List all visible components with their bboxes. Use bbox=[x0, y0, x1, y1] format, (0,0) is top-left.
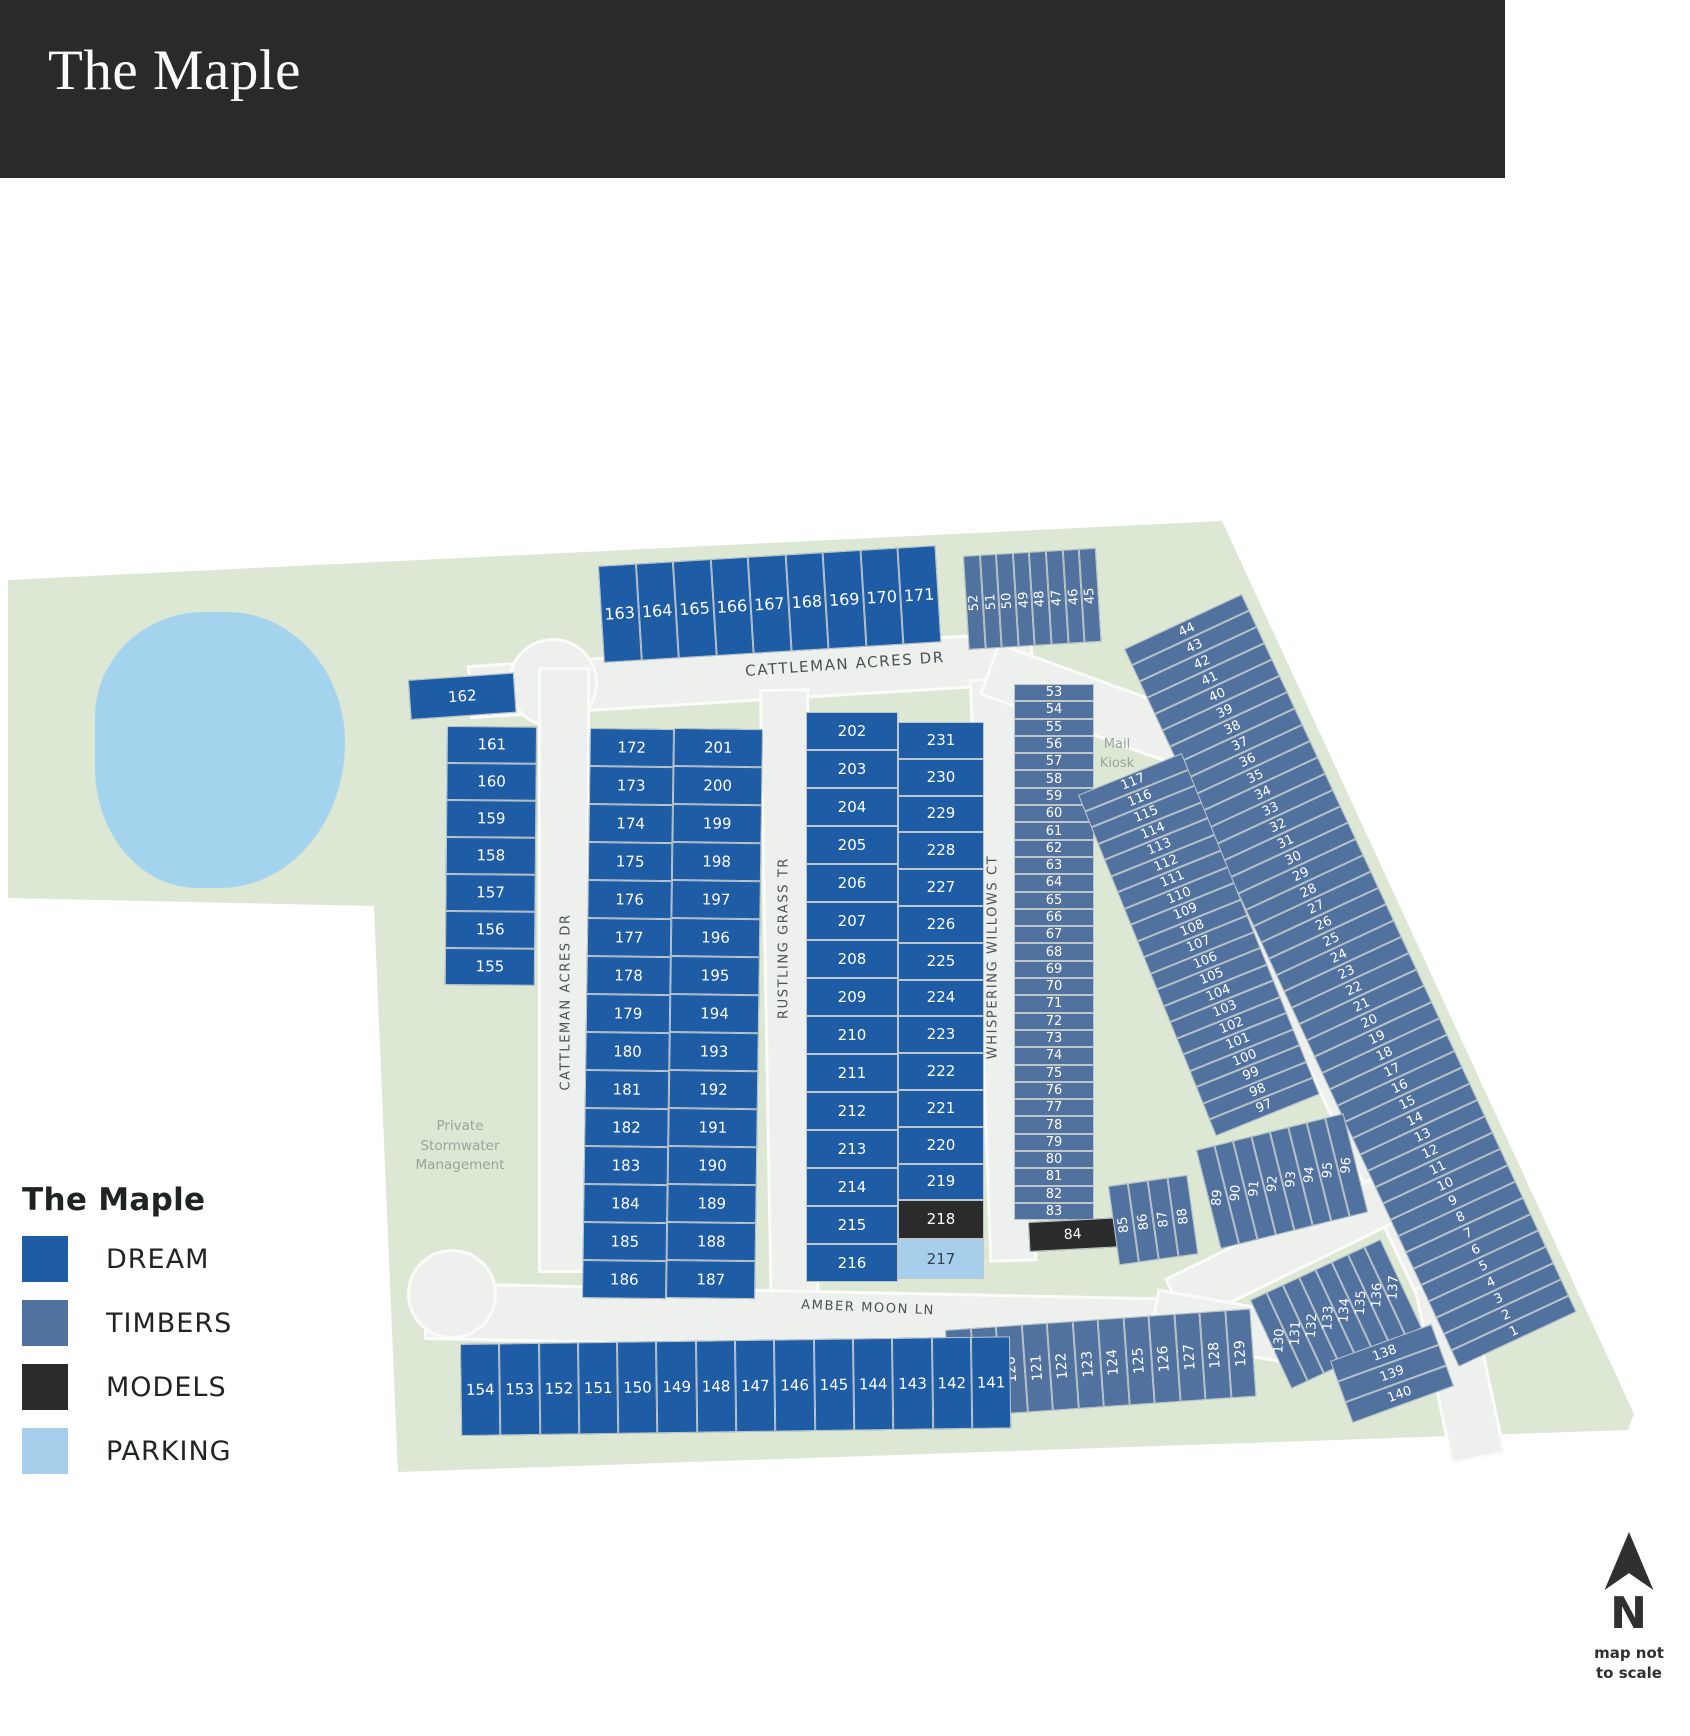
lot-number: 85 bbox=[1116, 1215, 1131, 1233]
lot-55[interactable]: 55 bbox=[1014, 719, 1094, 736]
lot-number: 73 bbox=[1046, 1032, 1063, 1045]
lot-number: 178 bbox=[614, 968, 643, 983]
lot-number: 210 bbox=[838, 1028, 867, 1043]
lot-number: 185 bbox=[610, 1234, 639, 1249]
lot-148[interactable]: 148 bbox=[696, 1340, 737, 1433]
lot-number: 183 bbox=[611, 1158, 640, 1173]
lot-177[interactable]: 177 bbox=[587, 918, 672, 957]
lot-198[interactable]: 198 bbox=[672, 842, 762, 881]
legend: The Maple DREAM TIMBERS MODELS PARKING bbox=[22, 1182, 342, 1492]
lot-186[interactable]: 186 bbox=[582, 1260, 667, 1299]
lot-number: 61 bbox=[1046, 825, 1063, 838]
header-bar: The Maple bbox=[0, 0, 1505, 178]
lot-number: 156 bbox=[476, 922, 505, 937]
lot-number: 180 bbox=[613, 1044, 642, 1059]
lot-53[interactable]: 53 bbox=[1014, 684, 1094, 701]
lot-number: 175 bbox=[616, 854, 645, 869]
lot-146[interactable]: 146 bbox=[774, 1339, 815, 1432]
timbers-swatch bbox=[22, 1300, 68, 1346]
lot-number: 62 bbox=[1046, 842, 1063, 855]
lot-number: 4 bbox=[1484, 1275, 1497, 1290]
lot-number: 74 bbox=[1046, 1049, 1063, 1062]
legend-title: The Maple bbox=[22, 1182, 342, 1218]
lot-number: 81 bbox=[1046, 1170, 1063, 1183]
lot-76[interactable]: 76 bbox=[1014, 1082, 1094, 1099]
lot-number: 65 bbox=[1046, 894, 1063, 907]
site-map: The Maple CATTLEMAN ACRES DR CATTLEMAN A… bbox=[0, 0, 1690, 1736]
lot-number: 131 bbox=[1288, 1320, 1302, 1345]
stormwater-note: Private Stormwater Management bbox=[400, 1117, 520, 1176]
lot-number: 157 bbox=[476, 885, 505, 900]
lot-84[interactable]: 84 bbox=[1028, 1217, 1117, 1252]
lot-number: 130 bbox=[1272, 1328, 1286, 1353]
lot-number: 128 bbox=[1207, 1341, 1223, 1369]
lot-193[interactable]: 193 bbox=[669, 1032, 759, 1071]
lot-197[interactable]: 197 bbox=[671, 880, 761, 919]
lot-158[interactable]: 158 bbox=[446, 837, 536, 875]
lot-number: 145 bbox=[820, 1377, 849, 1392]
lot-number: 195 bbox=[701, 968, 730, 983]
lot-200[interactable]: 200 bbox=[673, 766, 763, 805]
lot-77[interactable]: 77 bbox=[1014, 1099, 1094, 1116]
lot-67[interactable]: 67 bbox=[1014, 926, 1094, 943]
lot-number: 132 bbox=[1304, 1313, 1318, 1338]
lot-number: 196 bbox=[701, 930, 730, 945]
lot-number: 153 bbox=[505, 1381, 534, 1396]
lot-number: 79 bbox=[1046, 1136, 1063, 1149]
lot-number: 205 bbox=[838, 838, 867, 853]
lot-number: 143 bbox=[898, 1376, 927, 1391]
lot-number: 202 bbox=[838, 724, 867, 739]
lot-205[interactable]: 205 bbox=[806, 826, 898, 864]
lot-221[interactable]: 221 bbox=[898, 1090, 984, 1127]
lot-number: 165 bbox=[679, 600, 710, 618]
lot-167[interactable]: 167 bbox=[748, 555, 791, 654]
street-label-whispering: WHISPERING WILLOWS CT bbox=[986, 855, 1001, 1059]
lot-161[interactable]: 161 bbox=[447, 726, 537, 764]
lot-number: 231 bbox=[927, 733, 956, 748]
lot-number: 149 bbox=[662, 1379, 691, 1394]
lot-number: 48 bbox=[1033, 590, 1047, 607]
lot-155[interactable]: 155 bbox=[445, 948, 535, 986]
lot-201[interactable]: 201 bbox=[673, 728, 763, 767]
lot-number: 88 bbox=[1175, 1207, 1190, 1225]
lot-75[interactable]: 75 bbox=[1014, 1065, 1094, 1082]
lot-74[interactable]: 74 bbox=[1014, 1047, 1094, 1064]
lot-227[interactable]: 227 bbox=[898, 869, 984, 906]
lot-153[interactable]: 153 bbox=[499, 1343, 540, 1436]
lot-145[interactable]: 145 bbox=[814, 1339, 855, 1432]
lot-56[interactable]: 56 bbox=[1014, 736, 1094, 753]
lot-number: 146 bbox=[780, 1378, 809, 1393]
lot-number: 162 bbox=[447, 688, 477, 705]
compass: N map not to scale bbox=[1574, 1532, 1684, 1683]
lot-group-row-163-171: 163164165166167168169170171 bbox=[598, 545, 941, 662]
lot-number: 164 bbox=[641, 602, 672, 620]
lot-number: 188 bbox=[697, 1234, 726, 1249]
lot-178[interactable]: 178 bbox=[586, 956, 671, 995]
lot-number: 69 bbox=[1046, 963, 1063, 976]
street-label-rustling: RUSTLING GRASS TR bbox=[777, 857, 792, 1019]
lot-number: 75 bbox=[1046, 1067, 1063, 1080]
lot-68[interactable]: 68 bbox=[1014, 943, 1094, 960]
lot-157[interactable]: 157 bbox=[445, 874, 535, 912]
lot-number: 219 bbox=[927, 1174, 956, 1189]
lot-143[interactable]: 143 bbox=[892, 1337, 933, 1430]
lot-199[interactable]: 199 bbox=[672, 804, 762, 843]
lot-number: 142 bbox=[937, 1375, 966, 1390]
lot-65[interactable]: 65 bbox=[1014, 892, 1094, 909]
lot-number: 189 bbox=[697, 1196, 726, 1211]
lot-number: 57 bbox=[1046, 755, 1063, 768]
lot-202[interactable]: 202 bbox=[806, 712, 898, 750]
lot-number: 6 bbox=[1469, 1242, 1482, 1257]
lot-194[interactable]: 194 bbox=[670, 994, 760, 1033]
page-title: The Maple bbox=[48, 38, 301, 103]
lot-187[interactable]: 187 bbox=[666, 1260, 756, 1299]
lot-165[interactable]: 165 bbox=[673, 559, 716, 658]
lot-number: 193 bbox=[700, 1044, 729, 1059]
lot-225[interactable]: 225 bbox=[898, 943, 984, 980]
lot-number: 225 bbox=[927, 954, 956, 969]
lot-173[interactable]: 173 bbox=[589, 766, 674, 805]
lot-group-lot-84: 84 bbox=[1028, 1217, 1117, 1252]
lot-61[interactable]: 61 bbox=[1014, 822, 1094, 839]
lot-number: 186 bbox=[610, 1272, 639, 1287]
lot-number: 204 bbox=[838, 800, 867, 815]
lot-number: 203 bbox=[838, 762, 867, 777]
lot-66[interactable]: 66 bbox=[1014, 909, 1094, 926]
lot-number: 177 bbox=[615, 930, 644, 945]
lot-223[interactable]: 223 bbox=[898, 1016, 984, 1053]
lot-169[interactable]: 169 bbox=[823, 550, 866, 649]
lot-144[interactable]: 144 bbox=[853, 1338, 894, 1431]
lot-number: 150 bbox=[623, 1380, 652, 1395]
lot-number: 144 bbox=[859, 1377, 888, 1392]
lot-72[interactable]: 72 bbox=[1014, 1013, 1094, 1030]
lot-184[interactable]: 184 bbox=[583, 1184, 668, 1223]
lot-number: 83 bbox=[1046, 1205, 1063, 1218]
lot-number: 154 bbox=[466, 1382, 495, 1397]
lot-number: 96 bbox=[1340, 1156, 1354, 1173]
lot-166[interactable]: 166 bbox=[710, 557, 753, 656]
lot-number: 92 bbox=[1266, 1175, 1280, 1192]
lot-192[interactable]: 192 bbox=[669, 1070, 759, 1109]
north-label: N bbox=[1574, 1592, 1684, 1636]
lot-number: 53 bbox=[1046, 686, 1063, 699]
lot-number: 152 bbox=[544, 1381, 573, 1396]
lot-number: 155 bbox=[476, 959, 505, 974]
lot-number: 181 bbox=[613, 1082, 642, 1097]
lot-185[interactable]: 185 bbox=[583, 1222, 668, 1261]
lot-number: 213 bbox=[838, 1142, 867, 1157]
lot-number: 230 bbox=[927, 770, 956, 785]
lot-54[interactable]: 54 bbox=[1014, 701, 1094, 718]
lot-number: 159 bbox=[477, 811, 506, 826]
lot-224[interactable]: 224 bbox=[898, 980, 984, 1017]
lot-number: 137 bbox=[1386, 1275, 1400, 1300]
lot-230[interactable]: 230 bbox=[898, 759, 984, 796]
lot-217[interactable]: 217 bbox=[898, 1239, 984, 1279]
dream-swatch bbox=[22, 1236, 68, 1282]
lot-212[interactable]: 212 bbox=[806, 1092, 898, 1130]
mail-kiosk-note: Mail Kiosk bbox=[1092, 736, 1142, 774]
lot-group-col-172-186: 1721731741751761771781791801811821831841… bbox=[582, 728, 674, 1299]
lot-number: 134 bbox=[1337, 1297, 1351, 1322]
lot-203[interactable]: 203 bbox=[806, 750, 898, 788]
lot-218[interactable]: 218 bbox=[898, 1200, 984, 1239]
lot-206[interactable]: 206 bbox=[806, 864, 898, 902]
lot-number: 192 bbox=[699, 1082, 728, 1097]
lot-number: 190 bbox=[698, 1158, 727, 1173]
lot-220[interactable]: 220 bbox=[898, 1127, 984, 1164]
legend-item-dream: DREAM bbox=[22, 1236, 342, 1282]
lot-number: 224 bbox=[927, 990, 956, 1005]
lot-number: 91 bbox=[1247, 1179, 1261, 1196]
lot-228[interactable]: 228 bbox=[898, 832, 984, 869]
lot-number: 97 bbox=[1254, 1098, 1274, 1116]
lot-231[interactable]: 231 bbox=[898, 722, 984, 759]
lot-170[interactable]: 170 bbox=[860, 548, 903, 647]
lot-number: 72 bbox=[1046, 1015, 1063, 1028]
lot-number: 67 bbox=[1046, 928, 1063, 941]
lot-83[interactable]: 83 bbox=[1014, 1203, 1094, 1220]
lot-number: 179 bbox=[614, 1006, 643, 1021]
legend-item-parking: PARKING bbox=[22, 1428, 342, 1474]
lot-number: 60 bbox=[1046, 807, 1063, 820]
lot-70[interactable]: 70 bbox=[1014, 978, 1094, 995]
lot-63[interactable]: 63 bbox=[1014, 857, 1094, 874]
lot-number: 56 bbox=[1046, 738, 1063, 751]
lot-number: 171 bbox=[903, 586, 934, 604]
lot-191[interactable]: 191 bbox=[668, 1108, 758, 1147]
lot-number: 218 bbox=[927, 1212, 956, 1227]
lot-group-row-52-45: 5251504948474645 bbox=[963, 548, 1101, 650]
lot-150[interactable]: 150 bbox=[617, 1341, 658, 1434]
lot-147[interactable]: 147 bbox=[735, 1340, 776, 1433]
lot-number: 52 bbox=[967, 594, 981, 611]
lot-number: 121 bbox=[1029, 1354, 1045, 1382]
lot-174[interactable]: 174 bbox=[588, 804, 673, 843]
lot-181[interactable]: 181 bbox=[585, 1070, 670, 1109]
lot-number: 223 bbox=[927, 1027, 956, 1042]
lot-number: 167 bbox=[754, 595, 785, 613]
lot-188[interactable]: 188 bbox=[667, 1222, 757, 1261]
lot-number: 7 bbox=[1462, 1226, 1475, 1241]
lot-number: 49 bbox=[1017, 591, 1031, 608]
lot-164[interactable]: 164 bbox=[635, 561, 678, 660]
lot-number: 158 bbox=[476, 848, 505, 863]
lot-78[interactable]: 78 bbox=[1014, 1116, 1094, 1133]
lot-group-lot-217: 217 bbox=[898, 1239, 984, 1279]
lot-number: 9 bbox=[1446, 1193, 1459, 1208]
lot-number: 222 bbox=[927, 1064, 956, 1079]
lot-number: 148 bbox=[702, 1379, 731, 1394]
lot-number: 176 bbox=[615, 892, 644, 907]
lot-group-col-202-216: 2022032042052062072082092102112122132142… bbox=[806, 712, 898, 1282]
lot-213[interactable]: 213 bbox=[806, 1130, 898, 1168]
lot-number: 76 bbox=[1046, 1084, 1063, 1097]
lot-number: 161 bbox=[477, 737, 506, 752]
scale-note: map not to scale bbox=[1574, 1644, 1684, 1683]
lot-number: 5 bbox=[1477, 1258, 1490, 1273]
lot-163[interactable]: 163 bbox=[598, 564, 641, 663]
lot-number: 54 bbox=[1046, 703, 1063, 716]
lot-149[interactable]: 149 bbox=[656, 1341, 697, 1434]
street-label-cattleman-left: CATTLEMAN ACRES DR bbox=[559, 913, 574, 1090]
lot-number: 55 bbox=[1046, 721, 1063, 734]
lot-number: 174 bbox=[616, 816, 645, 831]
lot-number: 127 bbox=[1182, 1343, 1198, 1371]
lot-number: 182 bbox=[612, 1120, 641, 1135]
lot-154[interactable]: 154 bbox=[460, 1343, 501, 1436]
lot-number: 191 bbox=[698, 1120, 727, 1135]
lot-171[interactable]: 171 bbox=[897, 545, 940, 644]
lot-196[interactable]: 196 bbox=[671, 918, 761, 957]
lot-number: 170 bbox=[866, 588, 897, 606]
lot-156[interactable]: 156 bbox=[445, 911, 535, 949]
lot-176[interactable]: 176 bbox=[587, 880, 672, 919]
lot-number: 58 bbox=[1046, 773, 1063, 786]
lot-168[interactable]: 168 bbox=[785, 552, 828, 651]
lot-group-row-154-141: 1541531521511501491481471461451441431421… bbox=[460, 1336, 1011, 1436]
lot-number: 84 bbox=[1063, 1227, 1082, 1242]
lot-group-col-231-219: 231230229228227226225224223222221220219 bbox=[898, 722, 984, 1200]
lot-180[interactable]: 180 bbox=[585, 1032, 670, 1071]
models-swatch bbox=[22, 1364, 68, 1410]
lot-number: 94 bbox=[1303, 1165, 1317, 1182]
lot-189[interactable]: 189 bbox=[667, 1184, 757, 1223]
lot-number: 211 bbox=[838, 1066, 867, 1081]
lot-number: 212 bbox=[838, 1104, 867, 1119]
lot-182[interactable]: 182 bbox=[584, 1108, 669, 1147]
lot-number: 47 bbox=[1050, 589, 1064, 606]
lot-216[interactable]: 216 bbox=[806, 1244, 898, 1282]
lot-175[interactable]: 175 bbox=[588, 842, 673, 881]
lot-82[interactable]: 82 bbox=[1014, 1186, 1094, 1203]
lot-number: 215 bbox=[838, 1218, 867, 1233]
lot-number: 129 bbox=[1233, 1340, 1249, 1368]
lot-number: 221 bbox=[927, 1101, 956, 1116]
lot-number: 8 bbox=[1454, 1209, 1467, 1224]
lot-214[interactable]: 214 bbox=[806, 1168, 898, 1206]
lot-number: 80 bbox=[1046, 1153, 1063, 1166]
lot-207[interactable]: 207 bbox=[806, 902, 898, 940]
lot-number: 172 bbox=[617, 740, 646, 755]
lot-81[interactable]: 81 bbox=[1014, 1168, 1094, 1185]
legend-item-label: PARKING bbox=[106, 1436, 232, 1467]
lot-number: 87 bbox=[1155, 1210, 1170, 1228]
lot-number: 207 bbox=[838, 914, 867, 929]
lot-57[interactable]: 57 bbox=[1014, 753, 1094, 770]
lot-number: 1 bbox=[1507, 1324, 1520, 1339]
lot-183[interactable]: 183 bbox=[584, 1146, 669, 1185]
lot-195[interactable]: 195 bbox=[670, 956, 760, 995]
lot-211[interactable]: 211 bbox=[806, 1054, 898, 1092]
lot-number: 3 bbox=[1492, 1291, 1505, 1306]
lot-number: 82 bbox=[1046, 1188, 1063, 1201]
lot-group-lot-162: 162 bbox=[408, 673, 517, 720]
lot-219[interactable]: 219 bbox=[898, 1164, 984, 1201]
lot-number: 63 bbox=[1046, 859, 1063, 872]
lot-number: 220 bbox=[927, 1138, 956, 1153]
legend-item-label: TIMBERS bbox=[106, 1308, 232, 1339]
lot-215[interactable]: 215 bbox=[806, 1206, 898, 1244]
lot-number: 77 bbox=[1046, 1101, 1063, 1114]
lot-62[interactable]: 62 bbox=[1014, 840, 1094, 857]
lot-number: 147 bbox=[741, 1378, 770, 1393]
lot-number: 214 bbox=[838, 1180, 867, 1195]
lot-152[interactable]: 152 bbox=[539, 1342, 580, 1435]
lot-number: 206 bbox=[838, 876, 867, 891]
lot-number: 168 bbox=[791, 593, 822, 611]
lot-159[interactable]: 159 bbox=[446, 800, 536, 838]
lot-179[interactable]: 179 bbox=[586, 994, 671, 1033]
legend-item-timbers: TIMBERS bbox=[22, 1300, 342, 1346]
lot-60[interactable]: 60 bbox=[1014, 805, 1094, 822]
lot-number: 141 bbox=[977, 1375, 1006, 1390]
lot-number: 169 bbox=[829, 591, 860, 609]
lot-79[interactable]: 79 bbox=[1014, 1134, 1094, 1151]
lot-226[interactable]: 226 bbox=[898, 906, 984, 943]
lot-208[interactable]: 208 bbox=[806, 940, 898, 978]
lot-80[interactable]: 80 bbox=[1014, 1151, 1094, 1168]
lot-209[interactable]: 209 bbox=[806, 978, 898, 1016]
lot-group-col-201-187: 2012001991981971961951941931921911901891… bbox=[666, 728, 763, 1299]
lot-number: 197 bbox=[702, 892, 731, 907]
lot-210[interactable]: 210 bbox=[806, 1016, 898, 1054]
lot-162[interactable]: 162 bbox=[408, 673, 517, 720]
parking-swatch bbox=[22, 1428, 68, 1474]
lot-172[interactable]: 172 bbox=[589, 728, 674, 767]
lot-229[interactable]: 229 bbox=[898, 796, 984, 833]
lot-number: 187 bbox=[696, 1272, 725, 1287]
lot-number: 160 bbox=[477, 774, 506, 789]
lot-151[interactable]: 151 bbox=[578, 1342, 619, 1435]
lot-number: 68 bbox=[1046, 946, 1063, 959]
lot-number: 216 bbox=[838, 1256, 867, 1271]
lot-number: 70 bbox=[1046, 980, 1063, 993]
lot-58[interactable]: 58 bbox=[1014, 770, 1094, 787]
lot-number: 136 bbox=[1370, 1282, 1384, 1307]
lot-69[interactable]: 69 bbox=[1014, 961, 1094, 978]
lot-number: 226 bbox=[927, 917, 956, 932]
lot-number: 90 bbox=[1229, 1184, 1243, 1201]
lot-number: 125 bbox=[1131, 1347, 1147, 1375]
legend-item-models: MODELS bbox=[22, 1364, 342, 1410]
lot-160[interactable]: 160 bbox=[446, 763, 536, 801]
lot-73[interactable]: 73 bbox=[1014, 1030, 1094, 1047]
lot-190[interactable]: 190 bbox=[668, 1146, 758, 1185]
lot-64[interactable]: 64 bbox=[1014, 874, 1094, 891]
lot-number: 45 bbox=[1083, 587, 1097, 604]
lot-141[interactable]: 141 bbox=[971, 1336, 1012, 1429]
lot-142[interactable]: 142 bbox=[932, 1337, 973, 1430]
lot-222[interactable]: 222 bbox=[898, 1053, 984, 1090]
lot-number: 201 bbox=[704, 740, 733, 755]
lot-number: 184 bbox=[611, 1196, 640, 1211]
legend-item-label: DREAM bbox=[106, 1244, 209, 1275]
lot-number: 200 bbox=[703, 778, 732, 793]
lot-group-col-53-83: 5354555657585960616263646566676869707172… bbox=[1014, 684, 1094, 1220]
lot-number: 71 bbox=[1046, 997, 1063, 1010]
lot-number: 123 bbox=[1080, 1350, 1096, 1378]
lot-number: 51 bbox=[984, 593, 998, 610]
lot-number: 50 bbox=[1000, 592, 1014, 609]
lot-71[interactable]: 71 bbox=[1014, 995, 1094, 1012]
lot-204[interactable]: 204 bbox=[806, 788, 898, 826]
lot-group-row-85-88: 85868788 bbox=[1108, 1175, 1198, 1265]
